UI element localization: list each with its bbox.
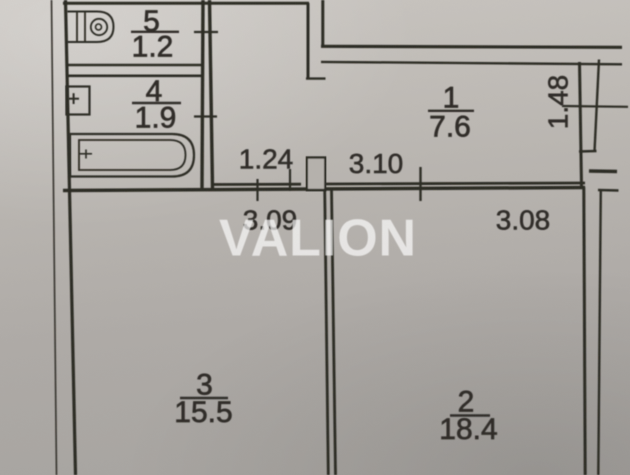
svg-text:3.08: 3.08 — [496, 205, 551, 236]
svg-text:15.5: 15.5 — [174, 396, 232, 429]
svg-text:VALION: VALION — [219, 210, 417, 268]
svg-text:18.4: 18.4 — [439, 413, 497, 446]
svg-text:1.9: 1.9 — [135, 102, 177, 135]
svg-text:1.48: 1.48 — [543, 75, 574, 130]
svg-text:1.2: 1.2 — [132, 31, 174, 64]
svg-text:3.10: 3.10 — [349, 148, 404, 179]
svg-text:7.6: 7.6 — [429, 111, 471, 144]
svg-text:1.24: 1.24 — [239, 144, 294, 175]
svg-text:1: 1 — [443, 81, 460, 114]
